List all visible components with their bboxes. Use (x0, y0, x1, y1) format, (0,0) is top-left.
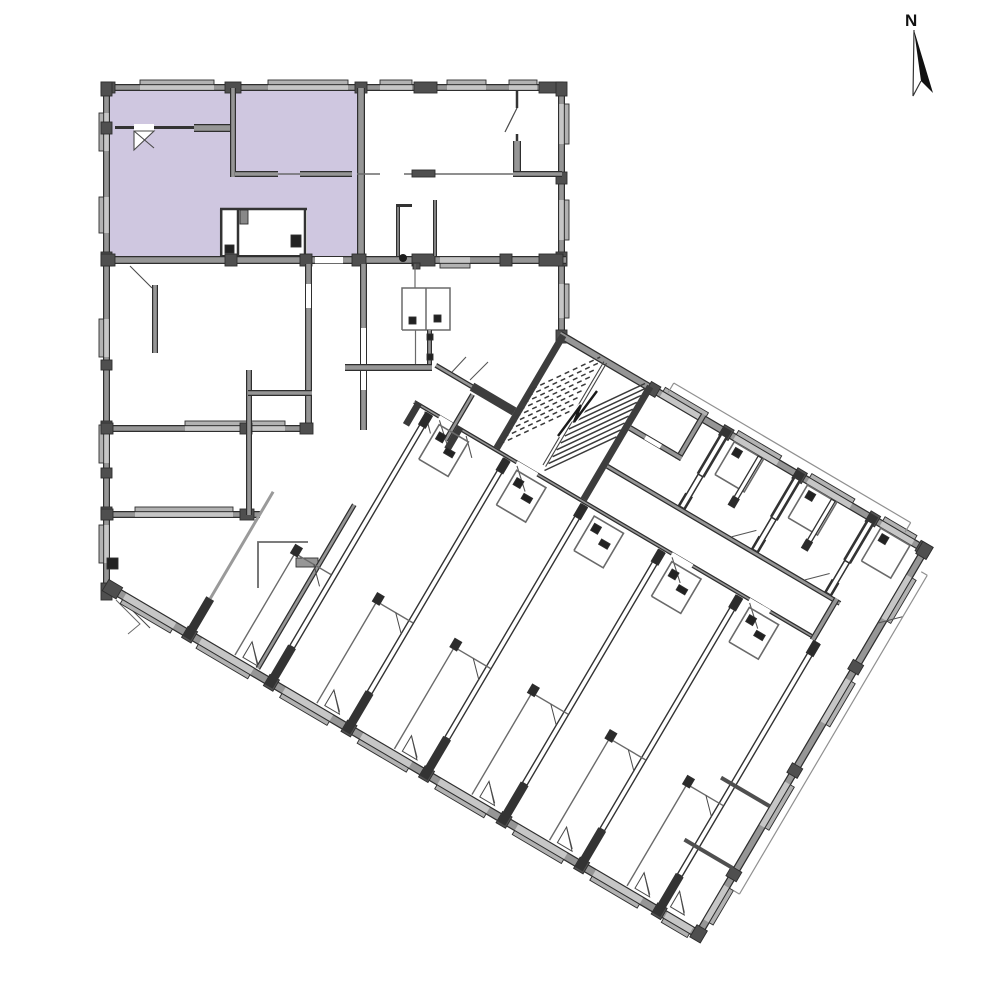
svg-text:N: N (905, 11, 917, 30)
